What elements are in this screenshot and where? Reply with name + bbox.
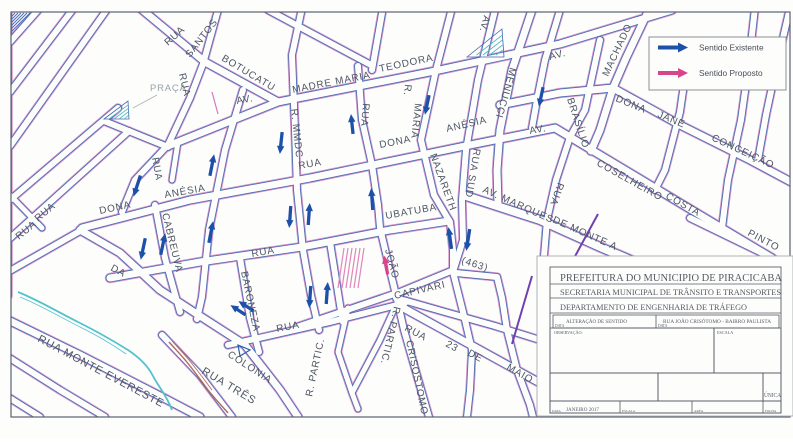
svg-text:R.: R. (401, 84, 413, 97)
svg-text:DATA: DATA (555, 324, 565, 328)
svg-text:FOLHA: FOLHA (765, 409, 777, 413)
svg-text:RUA: RUA (358, 103, 371, 127)
svg-text:ÚNICA: ÚNICA (764, 391, 782, 399)
svg-text:OBSERVAÇÃO:: OBSERVAÇÃO: (554, 330, 583, 335)
svg-text:ESCALA: ESCALA (622, 409, 636, 413)
svg-text:ESCALA: ESCALA (717, 330, 733, 335)
svg-text:Sentido Proposto: Sentido Proposto (699, 68, 763, 78)
svg-text:RUA JOÃO CRISÓTOMO - BAIRRO PA: RUA JOÃO CRISÓTOMO - BAIRRO PAULISTA (663, 317, 771, 325)
svg-text:Sentido Existente: Sentido Existente (699, 43, 764, 53)
svg-text:DATA: DATA (552, 409, 561, 413)
svg-text:AREA: AREA (694, 409, 704, 413)
svg-text:DEPARTAMENTO DE ENGENHARIA DE: DEPARTAMENTO DE ENGENHARIA DE TRÁFEGO (560, 302, 747, 312)
svg-text:DATA: DATA (658, 324, 668, 328)
svg-text:ALTERAÇÃO DE SENTIDO: ALTERAÇÃO DE SENTIDO (566, 317, 627, 325)
svg-text:PREFEITURA DO MUNICIPIO DE PIR: PREFEITURA DO MUNICIPIO DE PIRACICABA (560, 273, 783, 284)
svg-text:SECRETARIA MUNICIPAL DE TRÂNSI: SECRETARIA MUNICIPAL DE TRÂNSITO E TRANS… (560, 287, 781, 297)
svg-text:JANEIRO 2017: JANEIRO 2017 (566, 407, 599, 413)
